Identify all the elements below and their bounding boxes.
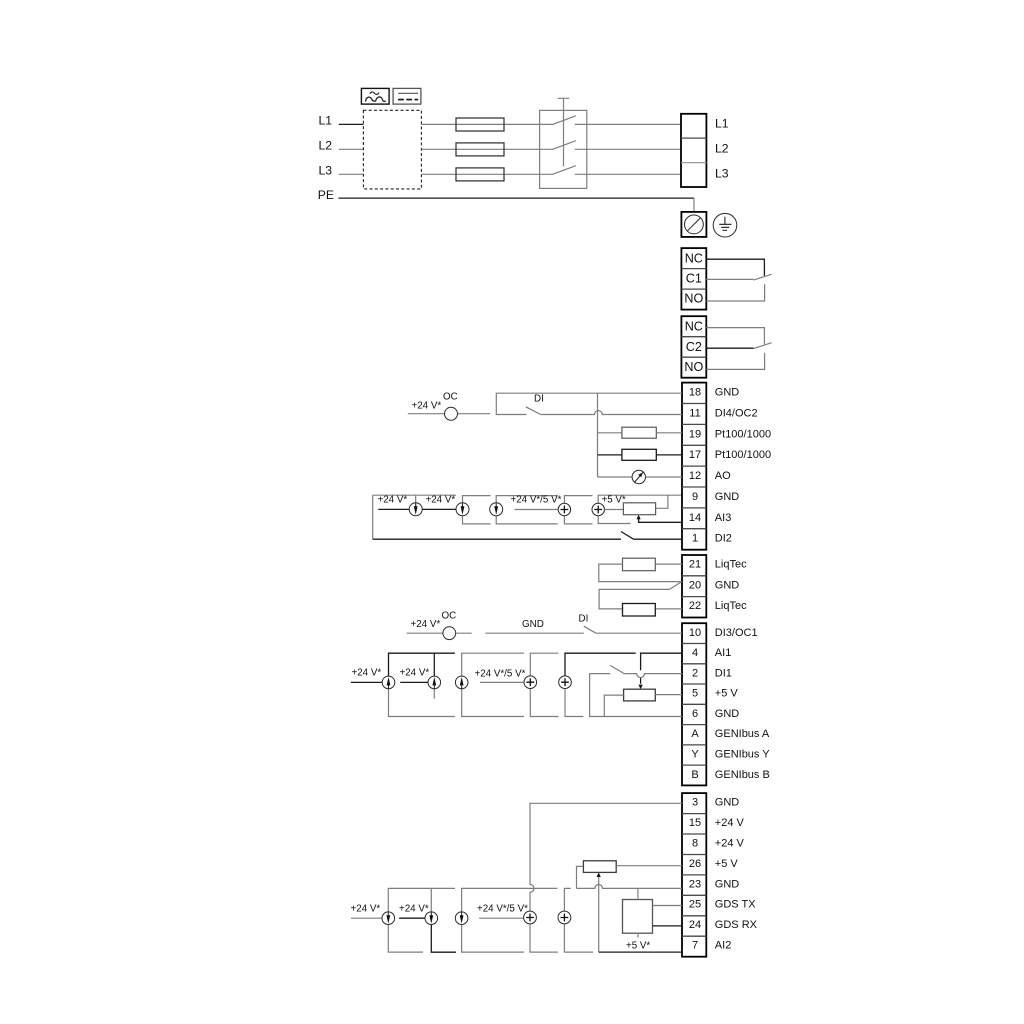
svg-text:L3: L3 [318, 164, 332, 178]
svg-text:6: 6 [692, 708, 698, 720]
svg-text:A: A [691, 728, 699, 740]
svg-text:L2: L2 [318, 139, 332, 153]
svg-text:14: 14 [689, 512, 701, 524]
svg-text:L2: L2 [715, 142, 729, 156]
svg-text:L3: L3 [715, 166, 729, 180]
svg-text:11: 11 [689, 407, 700, 419]
svg-text:+5 V*: +5 V* [602, 494, 626, 505]
svg-text:Pt100/1000: Pt100/1000 [715, 428, 771, 440]
svg-text:GENIbus A: GENIbus A [715, 728, 770, 740]
svg-text:25: 25 [689, 899, 701, 911]
svg-text:12: 12 [689, 470, 701, 482]
svg-text:DI: DI [534, 394, 544, 405]
svg-text:DI1: DI1 [715, 667, 732, 679]
svg-text:GND: GND [715, 387, 740, 399]
svg-text:24: 24 [689, 919, 701, 931]
svg-text:L1: L1 [715, 117, 729, 131]
svg-text:NO: NO [684, 360, 703, 374]
svg-text:L1: L1 [318, 114, 332, 128]
svg-text:15: 15 [689, 817, 701, 829]
svg-text:NC: NC [685, 320, 703, 334]
svg-text:+24 V*/5 V*: +24 V*/5 V* [475, 668, 526, 679]
svg-text:10: 10 [689, 627, 701, 639]
svg-text:GENIbus Y: GENIbus Y [715, 749, 770, 761]
svg-text:Y: Y [691, 749, 699, 761]
svg-text:PE: PE [318, 188, 334, 202]
svg-text:AO: AO [715, 470, 731, 482]
svg-text:OC: OC [443, 391, 458, 402]
svg-text:DI4/OC2: DI4/OC2 [715, 407, 758, 419]
svg-text:9: 9 [692, 491, 698, 503]
svg-text:GND: GND [715, 579, 740, 591]
svg-text:NC: NC [685, 251, 703, 265]
svg-text:GND: GND [522, 619, 544, 630]
svg-text:20: 20 [689, 579, 701, 591]
svg-text:18: 18 [689, 387, 701, 399]
svg-text:B: B [691, 769, 698, 781]
svg-text:NO: NO [684, 292, 703, 306]
svg-text:3: 3 [692, 797, 698, 809]
svg-text:GND: GND [715, 797, 740, 809]
svg-text:AI2: AI2 [715, 940, 732, 952]
svg-text:17: 17 [689, 449, 701, 461]
svg-text:AI3: AI3 [715, 512, 732, 524]
svg-text:+5 V: +5 V [715, 858, 739, 870]
svg-text:DI: DI [579, 613, 589, 624]
svg-text:+5 V: +5 V [715, 688, 739, 700]
svg-text:GENIbus B: GENIbus B [715, 769, 770, 781]
svg-text:+5 V*: +5 V* [626, 941, 650, 952]
svg-text:+24 V*: +24 V* [351, 904, 381, 915]
svg-text:GDS TX: GDS TX [715, 899, 756, 911]
svg-text:1: 1 [692, 533, 698, 545]
svg-text:+24 V*: +24 V* [411, 619, 441, 630]
svg-text:DI2: DI2 [715, 533, 732, 545]
svg-text:C2: C2 [686, 340, 702, 354]
svg-text:+24 V*/5 V*: +24 V*/5 V* [477, 904, 528, 915]
svg-text:+24 V: +24 V [715, 817, 745, 829]
svg-text:GND: GND [715, 491, 740, 503]
svg-text:+24 V*/5 V*: +24 V*/5 V* [511, 495, 562, 506]
svg-text:21: 21 [689, 559, 701, 571]
svg-text:8: 8 [692, 837, 698, 849]
svg-text:C1: C1 [686, 272, 702, 286]
svg-text:AI1: AI1 [715, 647, 732, 659]
svg-text:+24 V*: +24 V* [400, 667, 430, 678]
svg-text:+24 V*: +24 V* [412, 400, 442, 411]
svg-text:4: 4 [692, 647, 698, 659]
svg-text:26: 26 [689, 858, 701, 870]
svg-text:2: 2 [692, 667, 698, 679]
svg-text:+24 V: +24 V [715, 837, 745, 849]
svg-text:LiqTec: LiqTec [715, 600, 747, 612]
svg-text:LiqTec: LiqTec [715, 559, 747, 571]
svg-text:+24 V*: +24 V* [426, 495, 456, 506]
svg-text:OC: OC [442, 610, 457, 621]
svg-text:Pt100/1000: Pt100/1000 [715, 449, 771, 461]
svg-text:GND: GND [715, 878, 740, 890]
svg-text:22: 22 [689, 600, 701, 612]
svg-text:GND: GND [715, 708, 740, 720]
svg-text:DI3/OC1: DI3/OC1 [715, 627, 758, 639]
svg-text:+24 V*: +24 V* [352, 667, 382, 678]
svg-text:7: 7 [692, 940, 698, 952]
svg-text:5: 5 [692, 688, 698, 700]
svg-text:+24 V*: +24 V* [378, 495, 408, 506]
svg-text:23: 23 [689, 878, 701, 890]
svg-text:GDS RX: GDS RX [715, 919, 758, 931]
svg-text:+24 V*: +24 V* [399, 904, 429, 915]
svg-text:19: 19 [689, 428, 701, 440]
